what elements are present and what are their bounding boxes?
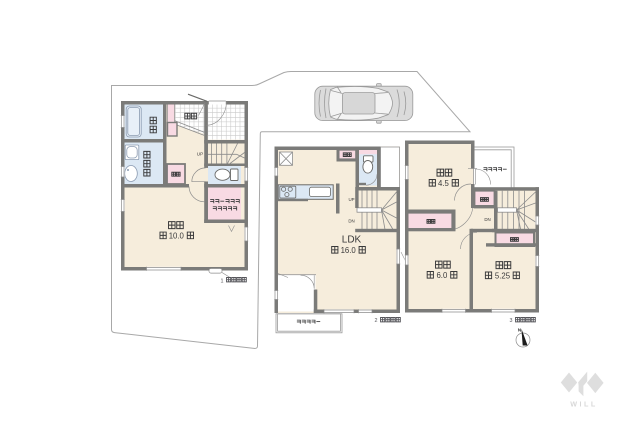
svg-text:5.25: 5.25 — [495, 271, 511, 280]
svg-text:1: 1 — [221, 278, 224, 284]
svg-text:6.0: 6.0 — [436, 271, 448, 280]
svg-text:16.0: 16.0 — [341, 246, 357, 255]
svg-text:WILL: WILL — [570, 400, 598, 409]
svg-text:2: 2 — [375, 318, 378, 324]
svg-text:LDK: LDK — [342, 235, 362, 246]
svg-text:DN: DN — [348, 219, 354, 224]
svg-text:UP: UP — [197, 151, 203, 156]
svg-text:UP: UP — [348, 197, 354, 202]
svg-text:DN: DN — [484, 217, 490, 222]
svg-text:N: N — [518, 328, 521, 333]
svg-text:10.0: 10.0 — [169, 231, 185, 240]
svg-text:4.5: 4.5 — [438, 179, 450, 188]
svg-text:3: 3 — [510, 318, 513, 324]
